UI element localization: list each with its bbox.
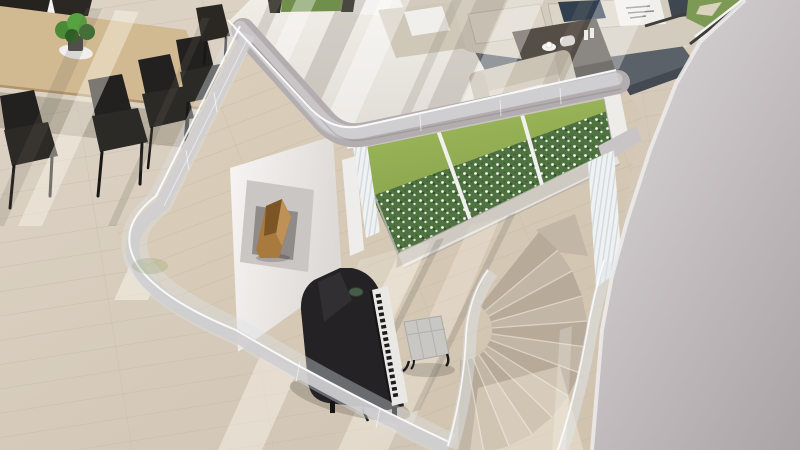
- bench-top: [404, 316, 449, 361]
- interior-render: [0, 0, 800, 450]
- piano-vase: [349, 288, 363, 297]
- render-viewport: Top-down 3D rendering: upper mezzanine w…: [0, 0, 800, 450]
- glass-green-reflection: [132, 258, 168, 274]
- piano-leg: [330, 401, 335, 413]
- teacup: [546, 42, 552, 48]
